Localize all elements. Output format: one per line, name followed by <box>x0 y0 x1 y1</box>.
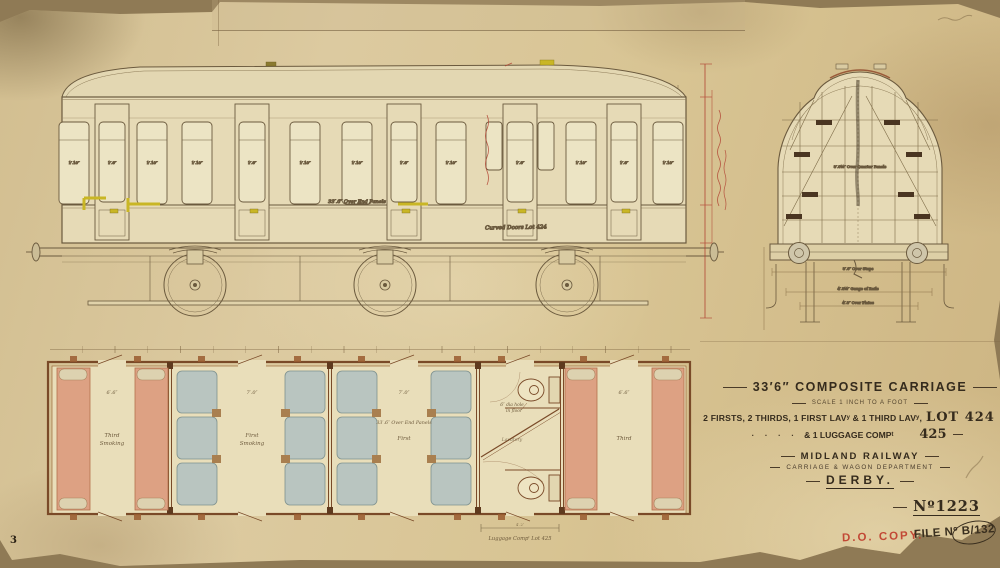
rule-dash <box>781 456 795 457</box>
lavatory-window <box>538 122 554 170</box>
luggage-dim: 4′.2″ <box>516 522 525 527</box>
compartment-dim: 7′.0″ <box>399 390 410 396</box>
dim-label: 1′.10″ <box>576 160 587 165</box>
rule-dash <box>806 481 820 482</box>
plan-view: Third Smoking First Smoking First Lavato… <box>48 355 690 542</box>
pencil-note-corner <box>938 15 972 20</box>
dim-label: 1′.6″ <box>400 160 409 165</box>
curved-doors-note: Curved Doors Lot 424 <box>485 224 547 231</box>
end-body-outline <box>778 72 942 245</box>
side-elevation: 33′.6″ Over End Panels Curved Doors Lot … <box>26 60 724 316</box>
luggage-text: & 1 LUGGAGE COMPᵗ <box>804 430 893 440</box>
dim-label: 1′.6″ <box>620 160 629 165</box>
rule-dash <box>893 507 907 508</box>
end-elevation: 8′.0½″ Over Quarter Panels 8′.6″ Over St… <box>764 64 954 330</box>
ink-smudge <box>857 80 858 206</box>
red-vertical-note <box>724 150 726 210</box>
compartment-dim: 7′.0″ <box>247 390 258 396</box>
dim-label: 1′.10″ <box>352 160 363 165</box>
dim-label: 1′.6″ <box>108 160 117 165</box>
dim-label: 1′.10″ <box>69 160 80 165</box>
drawing-title: 33′6″ COMPOSITE CARRIAGE <box>753 380 967 394</box>
drawing-sheet: 33′.6″ Over End Panels Curved Doors Lot … <box>0 0 1000 568</box>
ditto-marks: · · · · <box>751 430 798 440</box>
drawing-number: Nº1223 <box>913 498 980 516</box>
compartment-dim: 6′.6″ <box>107 390 118 396</box>
title-block: 33′6″ COMPOSITE CARRIAGE SCALE 1 INCH TO… <box>726 380 994 516</box>
compartment-label: Lavatory <box>501 437 523 443</box>
rule-dash <box>914 403 928 404</box>
red-vertical-note <box>718 110 721 206</box>
rule-dash <box>723 387 747 388</box>
lot-number: LOT 424 <box>926 410 995 425</box>
step-iron <box>944 264 954 308</box>
end-quarter-panels-dim: 8′.0½″ Over Quarter Panels <box>834 164 887 169</box>
roof-vent-brass <box>540 60 554 65</box>
roof-vent-cap <box>874 64 886 69</box>
composition-text: 2 FIRSTS, 2 THIRDS, 1 FIRST LAVʸ & 1 THI… <box>703 413 922 423</box>
dim-label: 1′.6″ <box>248 160 257 165</box>
brass-door-handle <box>402 209 410 213</box>
step-iron <box>766 264 776 308</box>
dim-label: 1′.10″ <box>446 160 457 165</box>
railway-name: MIDLAND RAILWAY <box>801 451 920 462</box>
department-name: CARRIAGE & WAGON DEPARTMENT <box>786 464 933 471</box>
end-over-plates-dim: 4′.8″ Over Plates <box>842 300 874 305</box>
sheet-number: 3 <box>10 535 17 546</box>
end-gauge-dim: 4′.8½″ Gauge of Rails <box>837 286 878 291</box>
side-over-end-panels-label: 33′.6″ Over End Panels <box>328 199 386 205</box>
city-name: DERBY. <box>826 473 894 489</box>
roof-profile <box>62 60 686 97</box>
wheels <box>164 246 598 316</box>
railway-row: MIDLAND RAILWAY <box>726 451 994 462</box>
drawing-number-row: Nº1223 <box>726 498 980 516</box>
roof-vent <box>266 62 276 66</box>
compartment-dim: 6′.6″ <box>619 390 630 396</box>
brass-door-handle <box>110 209 118 213</box>
rule-dash <box>940 467 950 468</box>
buffer-head <box>789 243 810 264</box>
end-solebar-buffers <box>770 243 948 279</box>
brass-door-handle <box>518 209 526 213</box>
brass-door-handle <box>622 209 630 213</box>
scale-note: SCALE 1 INCH TO A FOOT <box>812 400 908 406</box>
city-row: DERBY. <box>726 473 994 489</box>
brass-door-handle <box>250 209 258 213</box>
plan-over-end-panels-label: 33′.6″ Over End Panels <box>376 420 432 426</box>
rule-dash <box>953 434 963 435</box>
dim-label: 1′.10″ <box>663 160 674 165</box>
lot-number-2: 425 <box>919 427 946 442</box>
compartment-label: Third <box>104 433 120 439</box>
rule-dash <box>792 403 806 404</box>
rule-dash <box>900 481 914 482</box>
rule-dash <box>770 467 780 468</box>
compartment-label: Smoking <box>240 441 265 447</box>
department-row: CARRIAGE & WAGON DEPARTMENT <box>726 464 994 471</box>
luggage-row: · · · · & 1 LUGGAGE COMPᵗ 425 <box>726 427 994 442</box>
luggage-lot-note: Luggage Compᵗ Lot 425 <box>487 536 551 542</box>
compartment-label: Smoking <box>100 441 125 447</box>
plan-bottom-dimension: 4′.2″ Luggage Compᵗ Lot 425 <box>481 522 559 542</box>
compartment-label: First <box>244 433 259 439</box>
dim-label: 1′.10″ <box>300 160 311 165</box>
dim-label: 1′.10″ <box>192 160 203 165</box>
dim-label: 1′.10″ <box>147 160 158 165</box>
hole-note: 6″ dia hole <box>500 403 524 408</box>
title-row: 33′6″ COMPOSITE CARRIAGE <box>726 380 994 394</box>
roof-vent-cap <box>836 64 848 69</box>
rule-dash <box>925 456 939 457</box>
rule-dash <box>973 387 997 388</box>
compartment-label: First <box>396 436 411 442</box>
scale-row: SCALE 1 INCH TO A FOOT <box>726 400 994 406</box>
buffer-head <box>907 243 928 264</box>
compartment-label: Third <box>616 436 632 442</box>
composition-row: 2 FIRSTS, 2 THIRDS, 1 FIRST LAVʸ & 1 THI… <box>726 410 994 425</box>
toilet-pan <box>518 475 560 501</box>
end-over-steps-dim: 8′.6″ Over Steps <box>843 266 874 271</box>
dim-label: 1′.6″ <box>516 160 525 165</box>
toilet-pan <box>518 377 560 403</box>
hole-note: in floor <box>506 409 523 414</box>
buffers-side <box>26 243 724 261</box>
